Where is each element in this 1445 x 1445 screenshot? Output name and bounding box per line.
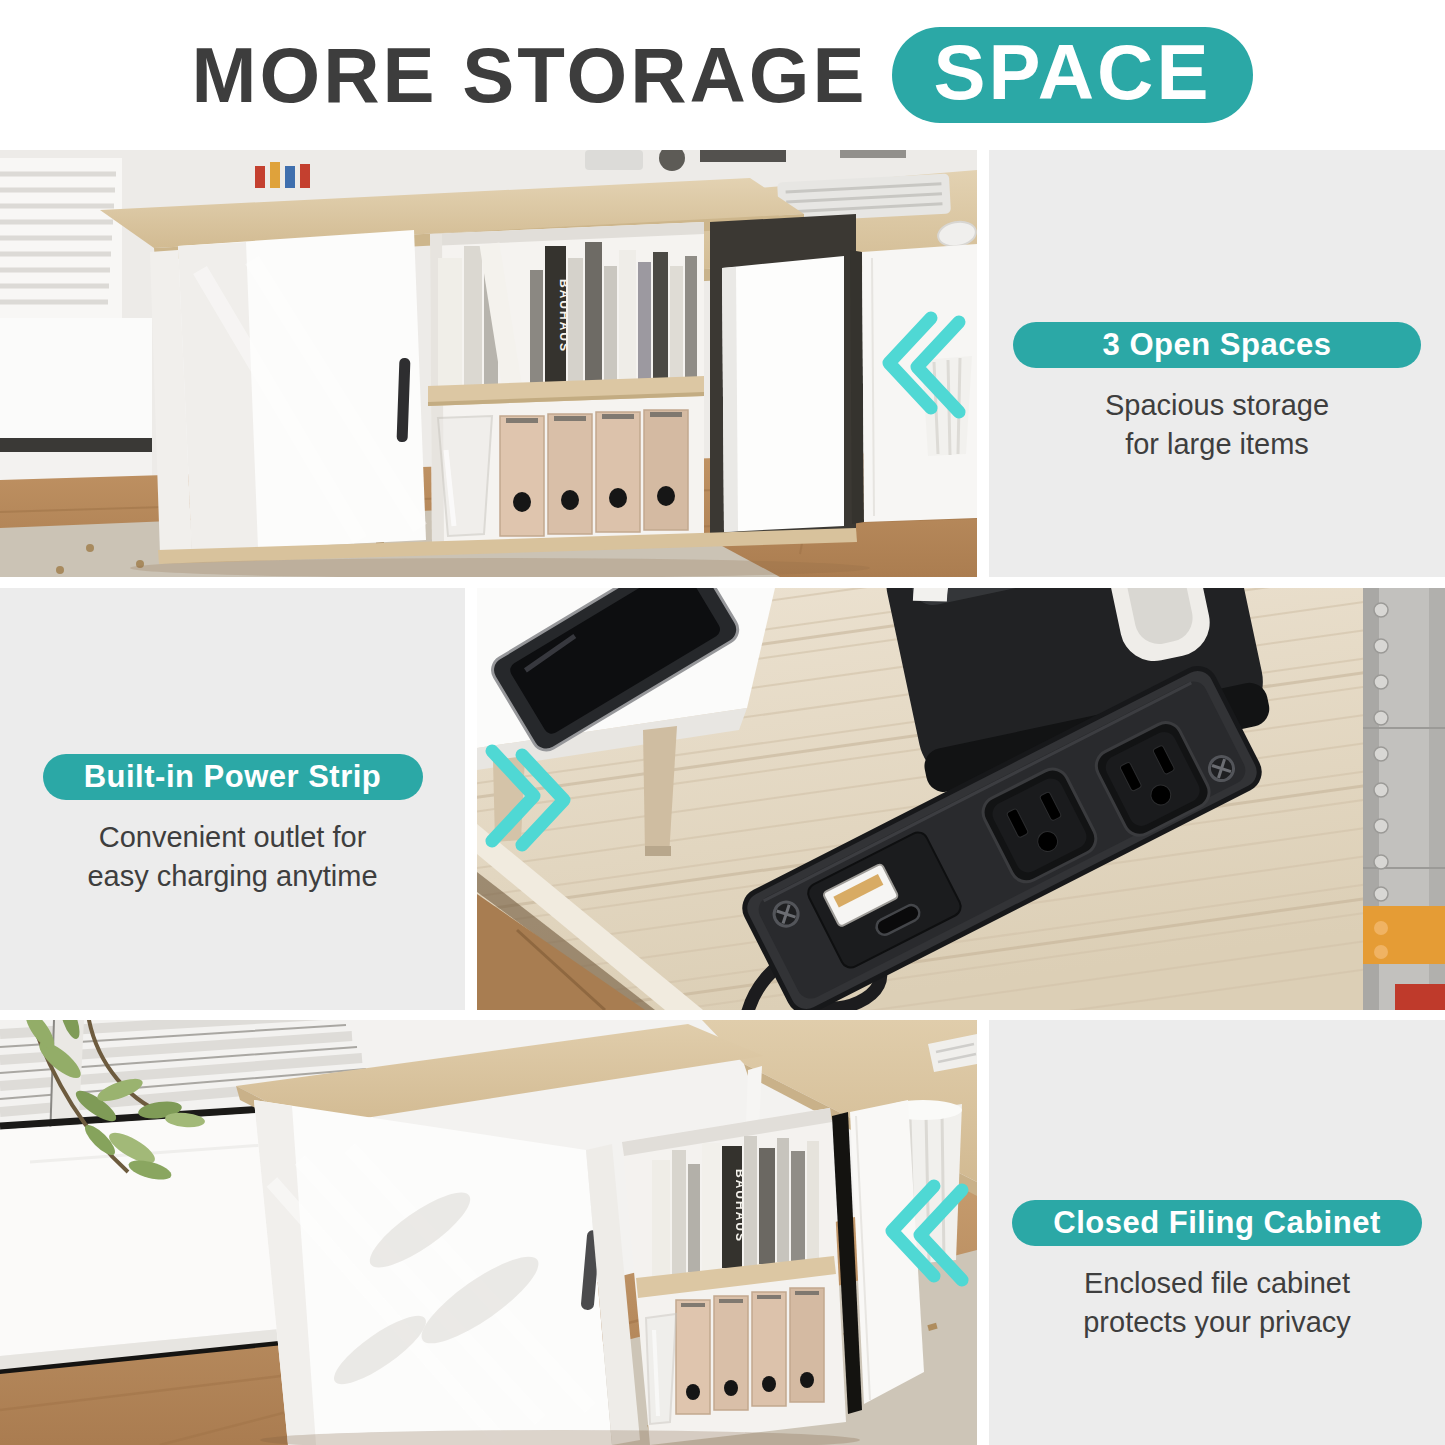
glass-cup: [646, 1314, 676, 1424]
description-line: Spacious storage: [1105, 386, 1329, 425]
photo-filing-cabinet: BAUHAUS: [0, 1020, 977, 1445]
cabinet-door: [254, 1100, 612, 1445]
pc-tower: [722, 256, 844, 532]
description-line: Convenient outlet for: [87, 818, 377, 857]
photo-open-storage: BAUHAUS: [0, 150, 977, 577]
page-title-text: MORE STORAGE: [192, 30, 868, 121]
open-spaces-badge: 3 Open Spaces: [1013, 322, 1421, 368]
callout-power-strip: Built-in Power Strip Convenient outlet f…: [0, 588, 465, 1010]
description-line: Enclosed file cabinet: [1083, 1264, 1351, 1303]
description-line: for large items: [1105, 425, 1329, 464]
filing-cabinet-scene: BAUHAUS: [0, 1020, 977, 1445]
cabinet-door: [178, 230, 426, 552]
photo-power-strip: [477, 588, 1445, 1010]
glass-vase: [438, 416, 492, 536]
power-strip-badge: Built-in Power Strip: [43, 754, 423, 800]
power-strip-scene: [477, 588, 1445, 1010]
description-line: protects your privacy: [1083, 1303, 1351, 1342]
books-row: BAUHAUS: [652, 1136, 819, 1276]
callout-open-spaces: 3 Open Spaces Spacious storage for large…: [989, 150, 1445, 577]
page-title-highlight-pill: SPACE: [892, 27, 1254, 123]
power-strip-description: Convenient outlet for easy charging anyt…: [87, 818, 377, 896]
open-storage-scene: BAUHAUS: [0, 150, 977, 577]
filing-cabinet-badge: Closed Filing Cabinet: [1012, 1200, 1422, 1246]
toy-tower: [1363, 588, 1445, 1010]
page-title: MORE STORAGE SPACE: [0, 0, 1445, 150]
open-spaces-description: Spacious storage for large items: [1105, 386, 1329, 464]
description-line: easy charging anytime: [87, 857, 377, 896]
filing-cabinet-description: Enclosed file cabinet protects your priv…: [1083, 1264, 1351, 1342]
callout-filing-cabinet: Closed Filing Cabinet Enclosed file cabi…: [989, 1020, 1445, 1445]
